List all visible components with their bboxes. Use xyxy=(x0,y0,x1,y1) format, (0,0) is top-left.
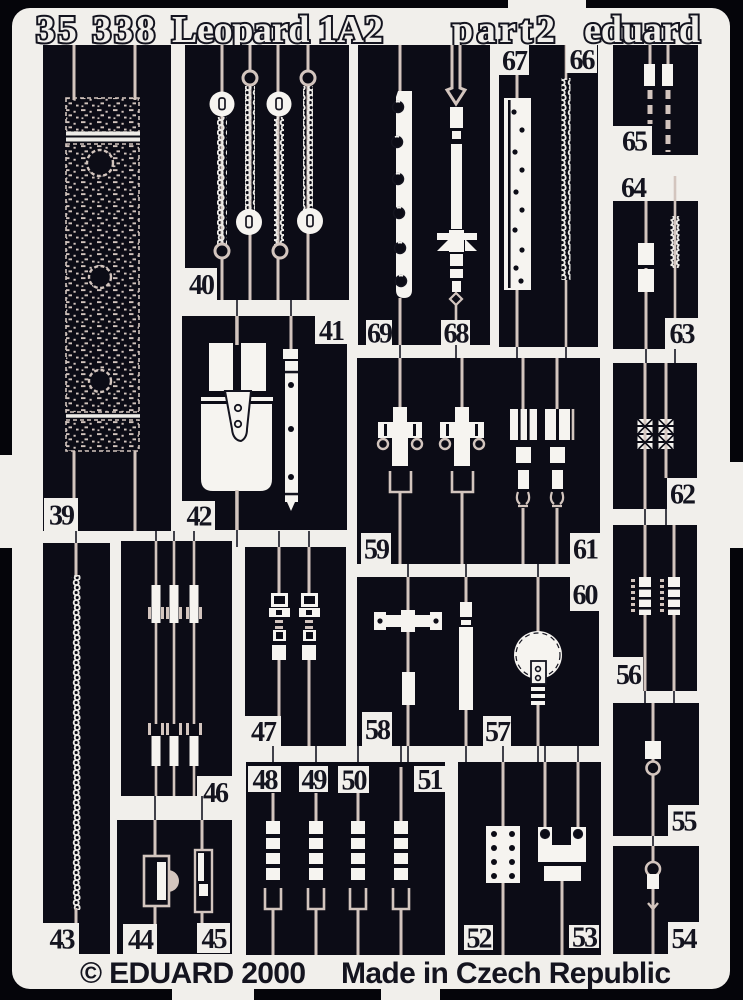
svg-text:45: 45 xyxy=(202,924,227,955)
svg-text:35 338: 35 338 xyxy=(36,9,156,51)
svg-text:50: 50 xyxy=(342,766,367,797)
svg-text:62: 62 xyxy=(670,480,695,511)
svg-text:67: 67 xyxy=(502,46,528,77)
svg-text:48: 48 xyxy=(253,765,279,796)
svg-text:64: 64 xyxy=(621,173,647,204)
svg-text:60: 60 xyxy=(573,580,598,611)
svg-text:65: 65 xyxy=(622,127,647,158)
svg-text:41: 41 xyxy=(319,316,344,347)
svg-text:eduard: eduard xyxy=(584,9,700,51)
svg-text:55: 55 xyxy=(672,807,697,838)
svg-text:54: 54 xyxy=(672,924,698,955)
svg-text:44: 44 xyxy=(128,925,154,956)
svg-text:46: 46 xyxy=(203,778,229,809)
svg-text:51: 51 xyxy=(418,765,443,796)
svg-text:© EDUARD 2000: © EDUARD 2000 xyxy=(80,957,306,990)
svg-text:40: 40 xyxy=(189,270,214,301)
svg-text:53: 53 xyxy=(572,923,598,954)
svg-text:59: 59 xyxy=(364,535,389,566)
svg-text:69: 69 xyxy=(367,319,392,350)
svg-text:56: 56 xyxy=(616,660,642,691)
svg-text:42: 42 xyxy=(187,502,212,533)
svg-text:58: 58 xyxy=(365,715,391,746)
svg-text:66: 66 xyxy=(570,45,596,76)
svg-text:49: 49 xyxy=(302,765,327,796)
svg-text:Leopard 1A2: Leopard 1A2 xyxy=(172,9,384,51)
svg-text:part2: part2 xyxy=(452,9,556,51)
svg-text:61: 61 xyxy=(573,535,598,566)
svg-text:52: 52 xyxy=(467,924,492,955)
svg-text:63: 63 xyxy=(670,319,696,350)
svg-text:Made in Czech Republic: Made in Czech Republic xyxy=(341,957,671,990)
svg-text:57: 57 xyxy=(485,717,511,748)
svg-text:43: 43 xyxy=(50,925,76,956)
svg-text:39: 39 xyxy=(49,501,74,532)
svg-text:47: 47 xyxy=(251,717,277,748)
svg-text:68: 68 xyxy=(444,319,470,350)
